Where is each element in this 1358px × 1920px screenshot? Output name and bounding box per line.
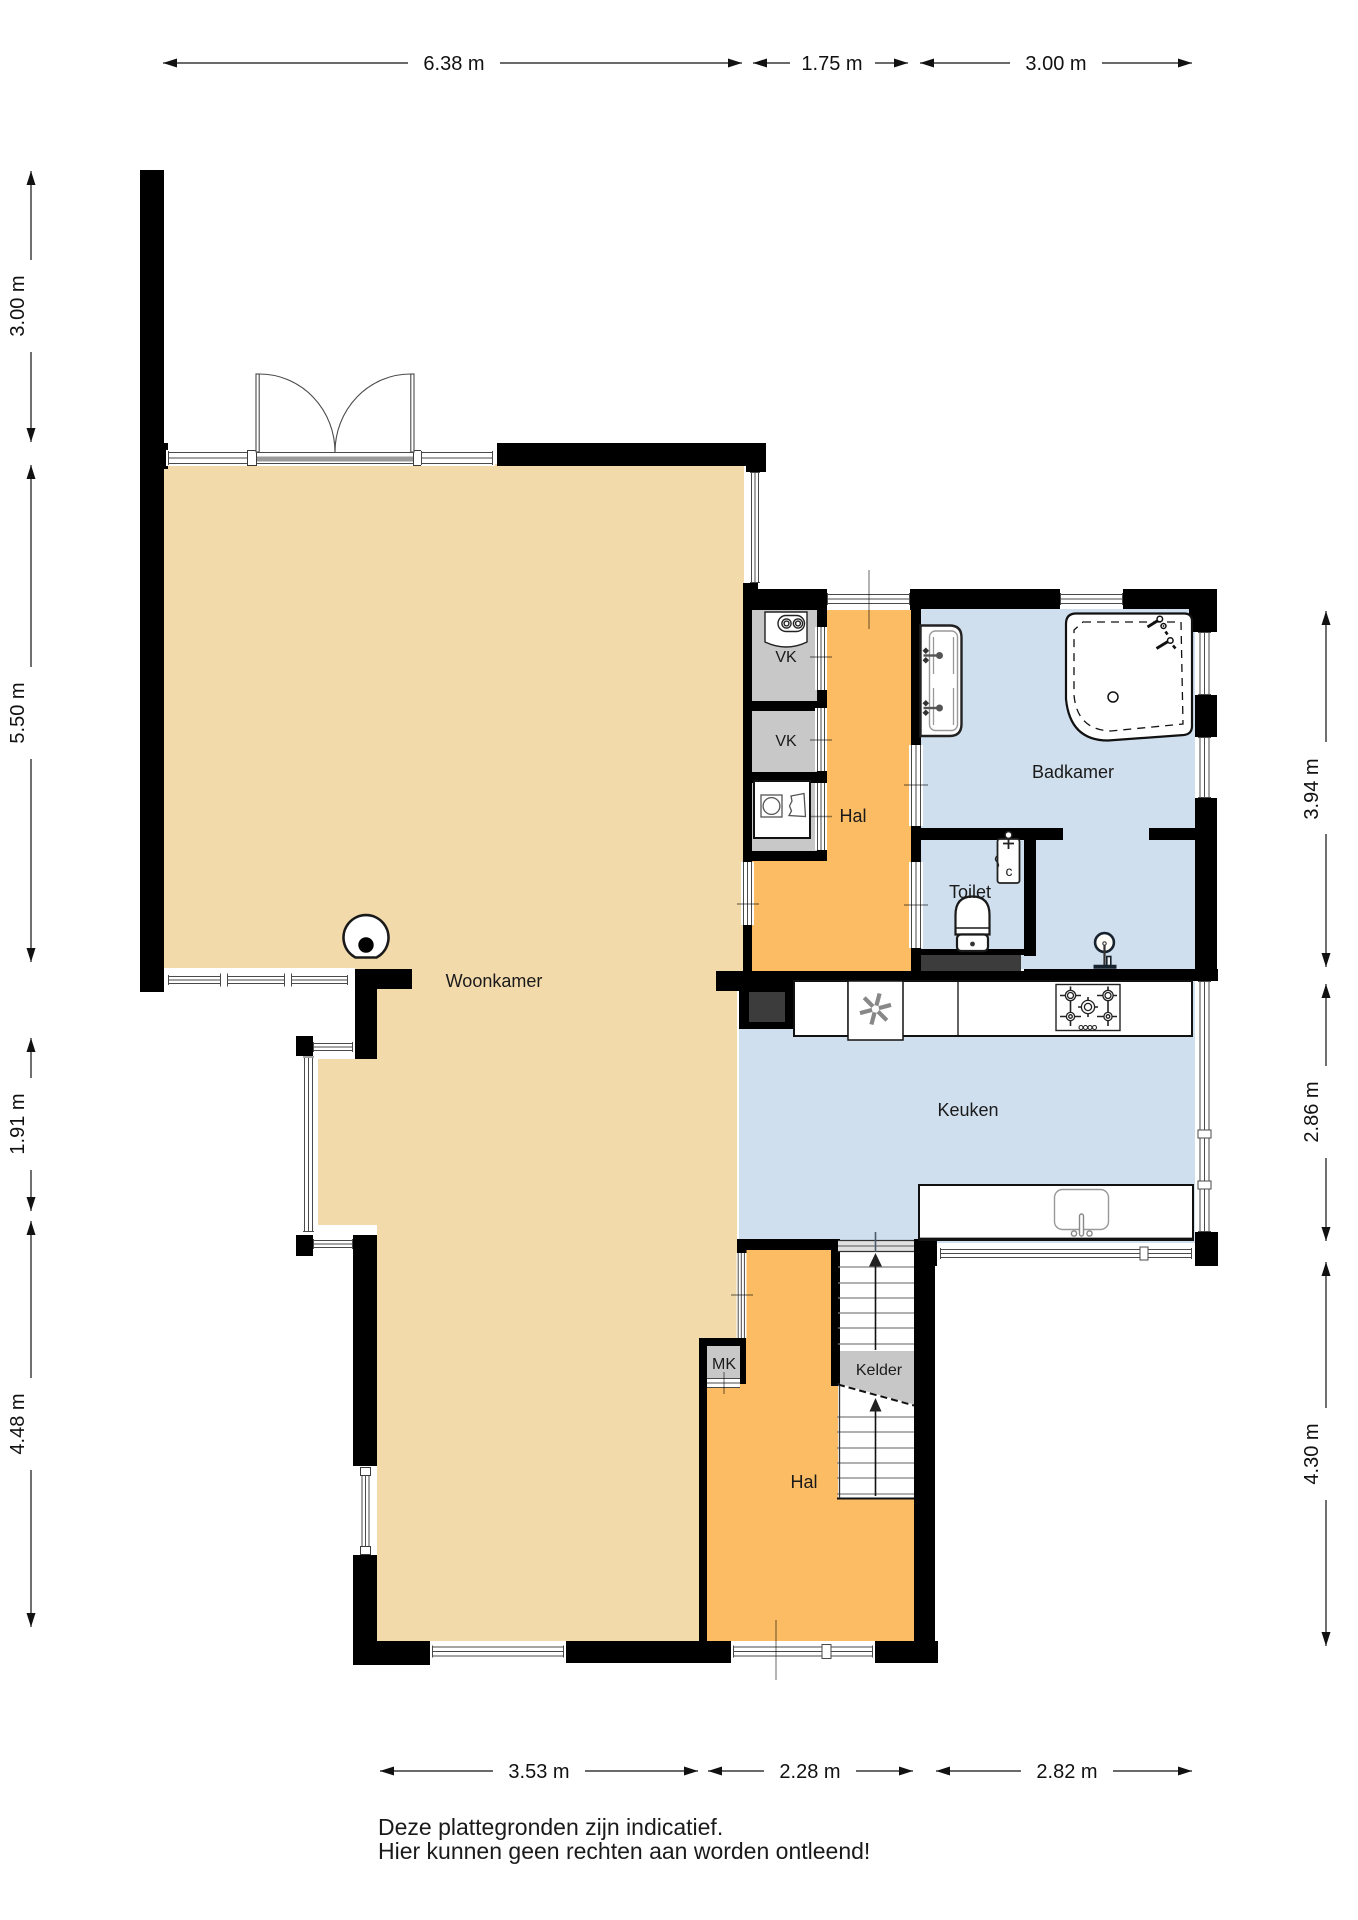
svg-text:2.28 m: 2.28 m [779, 1761, 840, 1783]
svg-text:VK: VK [775, 733, 797, 750]
svg-text:c: c [1006, 863, 1013, 879]
svg-text:5.50 m: 5.50 m [7, 682, 29, 743]
svg-text:VK: VK [775, 649, 797, 666]
svg-text:4.30 m: 4.30 m [1301, 1423, 1323, 1484]
svg-text:2.82 m: 2.82 m [1036, 1761, 1097, 1783]
svg-text:1.91 m: 1.91 m [7, 1093, 29, 1154]
svg-text:2.86 m: 2.86 m [1301, 1081, 1323, 1142]
svg-text:Deze plattegronden zijn indica: Deze plattegronden zijn indicatief. [378, 1814, 723, 1840]
svg-text:Hal: Hal [790, 1472, 817, 1492]
svg-text:Keuken: Keuken [937, 1100, 998, 1120]
svg-text:Woonkamer: Woonkamer [446, 971, 543, 991]
svg-text:3.00 m: 3.00 m [1025, 53, 1086, 75]
svg-text:6.38 m: 6.38 m [423, 53, 484, 75]
svg-text:Hal: Hal [839, 806, 866, 826]
svg-text:Toilet: Toilet [949, 882, 991, 902]
svg-text:3.53 m: 3.53 m [508, 1761, 569, 1783]
svg-text:3.00 m: 3.00 m [7, 275, 29, 336]
svg-text:Kelder: Kelder [856, 1362, 903, 1379]
svg-text:Hier kunnen geen rechten aan w: Hier kunnen geen rechten aan worden ontl… [378, 1838, 870, 1864]
svg-text:3.94 m: 3.94 m [1301, 758, 1323, 819]
svg-text:4.48 m: 4.48 m [7, 1393, 29, 1454]
svg-text:MK: MK [712, 1356, 736, 1373]
svg-text:1.75 m: 1.75 m [801, 53, 862, 75]
svg-text:Badkamer: Badkamer [1032, 762, 1114, 782]
